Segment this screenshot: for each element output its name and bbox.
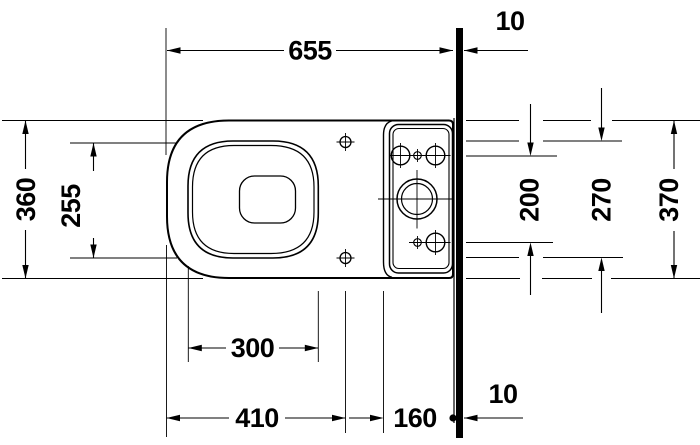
arrowhead-down (671, 265, 677, 279)
arrowhead-up (527, 243, 533, 257)
bowl-rim-outer (188, 141, 318, 258)
dimension-255: 255 (56, 143, 177, 258)
dim-label-10-top: 10 (495, 6, 524, 36)
dim-label-255: 255 (56, 184, 86, 228)
dimension-360: 360 (2, 121, 203, 279)
water-spot-outline (240, 176, 296, 223)
dim-label-200: 200 (515, 178, 545, 222)
dim-label-160: 160 (393, 403, 437, 433)
arrowhead-left (167, 47, 181, 53)
arrowhead-left (167, 415, 181, 421)
toilet-plan-technical-drawing: 655 10 360 255 200 (0, 0, 700, 445)
arrowhead-right (440, 47, 454, 53)
arrowhead-up (671, 121, 677, 135)
arrowhead-down (22, 265, 28, 279)
dimension-370: 370 (466, 121, 700, 279)
dimension-270: 270 (466, 88, 623, 313)
dimension-655: 655 (166, 28, 453, 155)
arrowhead-up (22, 121, 28, 135)
dim-label-410: 410 (235, 403, 279, 433)
arrowhead-left (188, 345, 202, 351)
dimension-160: 160 (349, 291, 457, 433)
dimension-300: 300 (188, 266, 318, 363)
dimension-10-bottom: 10 (464, 379, 523, 421)
dim-label-360: 360 (11, 178, 41, 222)
arrowhead-up (598, 258, 604, 272)
dimension-10-top: 10 (464, 6, 528, 54)
arrowhead-right (370, 415, 384, 421)
dim-label-370: 370 (654, 178, 684, 222)
arrowhead-down (90, 245, 96, 259)
dimension-terminator-dot (449, 414, 456, 421)
arrowhead-left (464, 47, 478, 53)
dimension-200: 200 (466, 104, 557, 295)
arrowhead-right (305, 345, 319, 351)
dim-label-270: 270 (587, 178, 617, 222)
technical-drawing-canvas: 655 10 360 255 200 (0, 0, 700, 445)
seat-hinge-holes (337, 133, 355, 267)
wall (454, 28, 460, 438)
dim-label-655: 655 (288, 36, 332, 66)
arrowhead-right (332, 415, 346, 421)
arrowhead-down (527, 143, 533, 157)
arrowhead-left (464, 415, 478, 421)
dim-label-300: 300 (231, 333, 275, 363)
arrowhead-down (598, 128, 604, 142)
arrowhead-up (90, 143, 96, 157)
dim-label-10-bottom: 10 (488, 379, 517, 409)
